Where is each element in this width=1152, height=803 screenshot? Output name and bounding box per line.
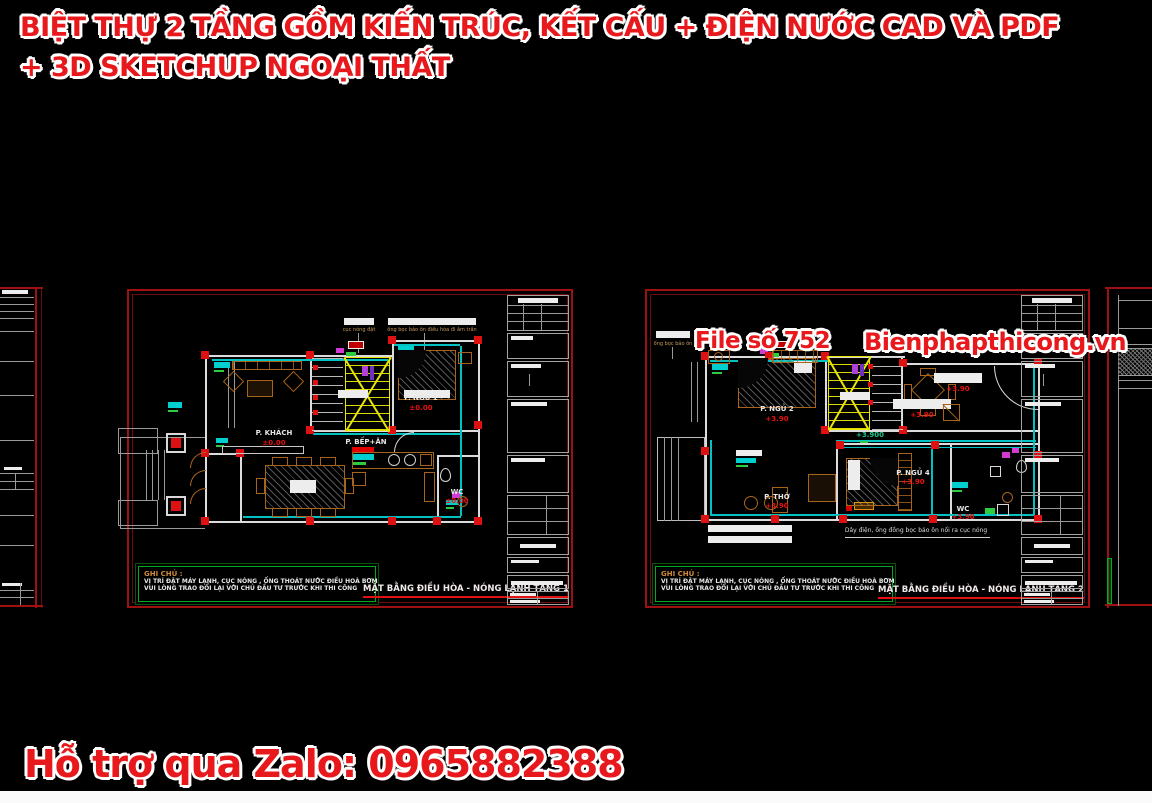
drain-pipe [446,507,454,509]
refrigerant-pipe [1012,448,1019,453]
column-marker [701,515,709,523]
legend-bar [708,536,792,543]
note-heading: GHI CHÚ : [661,570,887,578]
annotation-bar [388,318,476,325]
stairs-flight [872,356,903,430]
watermark-file-number: File số 752 [695,328,830,354]
bed-pillow [848,460,860,490]
titleblock-bar [1025,364,1055,368]
titleblock-bar [2,290,28,294]
legend-bar [708,525,792,532]
room-level: +3.90 [946,385,969,393]
titleblock-bar [511,364,541,368]
riser-pipe [370,366,374,380]
titleblock-bar [1025,560,1053,563]
titleblock-cell [1021,495,1083,535]
washbasin [1002,492,1013,503]
balcony-rail [664,437,665,521]
window-line [228,362,229,428]
sheet-border [0,287,43,289]
titleblock-bar [511,581,563,585]
titleblock-bar [1025,581,1077,585]
titleblock-line [1118,380,1152,381]
titleblock-line [508,305,568,306]
note-heading: GHI CHÚ : [144,570,370,578]
stair-marker [868,364,873,369]
titleblock-bar [1025,458,1059,462]
ac-indoor-unit [952,482,968,488]
room-level: +3.90 [951,513,974,521]
stair-marker [313,380,318,385]
column-marker [929,515,937,523]
titleblock-cell [1021,575,1083,589]
window-line [697,362,698,422]
titleblock-line [0,311,34,312]
wall [240,455,242,523]
note-box: GHI CHÚ : VỊ TRÍ ĐẶT MÁY LẠNH, CỤC NÓNG … [138,566,376,602]
kitchen-sink [404,454,416,466]
titleblock-line [1118,300,1152,301]
porch-step [146,450,147,500]
titleblock-bar [511,402,547,406]
page-title-line2: + 3D SKETCHUP NGOẠI THẤT [20,52,450,83]
footer-support-text: Hỗ trợ qua Zalo: 0965882388 [24,742,623,786]
altar-table [808,474,836,502]
pouf [744,496,758,510]
titleblock-cell [507,591,569,605]
refrigerant-pipe [1002,452,1010,458]
titleblock-cell [507,575,569,589]
cad-screenshot: BIỆT THỰ 2 TẦNG GỒM KIẾN TRÚC, KẾT CẤU +… [0,0,1152,803]
porch-line [120,528,205,529]
titleblock-line [0,590,34,591]
porch-column-core [171,501,181,511]
room-label: P. BẾP+ĂN [345,438,386,446]
wall [478,340,480,523]
note-line: VUI LÒNG TRAO ĐỔI LẠI VỚI CHỦ ĐẦU TƯ TRƯ… [144,585,370,592]
titleblock-cell [507,333,569,359]
coffee-table [247,380,273,397]
stair-marker [313,365,318,370]
annotation-bar [656,331,690,338]
titleblock-line [508,598,568,599]
chair [320,508,336,517]
ac-indoor-unit [214,362,230,368]
water-heater [997,504,1009,516]
titleblock-line [1055,304,1056,330]
chair [256,478,265,494]
wall [825,356,827,432]
column-marker [701,447,709,455]
column-marker [201,517,209,525]
pipe-line [710,440,712,516]
titleblock-line [1060,496,1061,534]
titleblock-bar [511,560,539,563]
toilet [440,468,451,482]
column-marker [306,517,314,525]
legend-tick [168,410,178,412]
drain-pipe [346,352,356,356]
note-line: VUI LÒNG TRAO ĐỔI LẠI VỚI CHỦ ĐẦU TƯ TRƯ… [661,585,887,592]
wall [903,363,1040,365]
fridge [352,472,366,486]
titleblock-bar [510,593,536,596]
riser-pipe [860,364,864,376]
titleblock-bar [1034,544,1070,548]
titleblock-line [0,481,34,482]
kitchen-sink [388,454,400,466]
stair-marker [313,410,318,415]
column-marker [201,351,209,359]
titleblock-line [0,331,34,332]
titleblock-line [1022,508,1082,509]
titleblock-line [1051,592,1052,604]
titleblock-line [1118,388,1152,389]
wall [392,340,394,432]
pipe-line [712,514,1034,516]
titleblock-line [1022,305,1082,306]
cabinet [424,472,435,502]
elevation-label: +3.900 [856,431,884,439]
titleblock-line [546,496,547,534]
chair [904,384,912,400]
riser-pipe [852,364,858,374]
chair [296,457,312,466]
sheet-border [1105,604,1152,606]
room-level: ±0.00 [262,439,285,447]
column-marker [474,421,482,429]
titleblock-line [0,473,34,474]
dining-highlight [290,480,316,493]
room-level: ±0.00 [445,497,468,505]
room-label: WC [451,488,464,496]
titleblock-line [0,515,34,516]
sheet-border [0,605,43,607]
titleblock-line [541,304,542,330]
level-tick [860,441,868,443]
column-marker [836,441,844,449]
chair [272,457,288,466]
chair [296,508,312,517]
porch-step [164,450,165,500]
titleblock-bar [1032,298,1072,303]
note-box: GHI CHÚ : VỊ TRÍ ĐẶT MÁY LẠNH, CỤC NÓNG … [655,566,893,602]
room-label: P. KHÁCH [256,429,293,437]
nightstand [458,352,472,364]
titleblock-line [508,313,568,314]
watermark-site: Bienphapthicong.vn [864,328,1126,356]
titleblock-line [529,374,530,386]
wall [705,356,707,521]
titleblock-line [1022,321,1082,322]
column-marker [474,336,482,344]
porch-step [158,450,159,500]
annotation-bar [344,318,374,325]
titleblock-bar [511,458,545,462]
stove [420,454,432,466]
titleblock-bar [2,583,22,586]
room-level: +3.90 [910,411,933,419]
legend-green-strip [1107,558,1112,604]
wall [437,455,439,523]
chair [272,508,288,517]
titleblock-line [537,592,538,604]
titleblock-line [523,304,524,330]
room-level: +3.90 [901,478,924,486]
room-level: +3.90 [765,415,788,423]
leader-line [424,333,425,351]
titleblock-bar [511,336,533,340]
titleblock-line [1043,374,1044,386]
titleblock-cell [1021,455,1083,493]
refrigerant-pipe [336,348,344,353]
titleblock-line [508,321,568,322]
titleblock-line [1037,304,1038,330]
leader-line [672,347,673,359]
room-label: P. NGỦ 2 [760,405,794,413]
titleblock-bar [1025,402,1061,406]
titleblock-line [0,318,34,319]
room-label: P. NGỦ 4 [896,469,930,477]
legend-tick [712,372,722,374]
titleblock-line [0,489,34,490]
titleblock-bar [520,544,556,548]
window-line [691,362,692,422]
titleblock-line [508,521,568,522]
stair-marker [313,395,318,400]
chair [320,457,336,466]
planter [118,500,158,526]
titleblock-line [20,583,21,605]
ac-indoor-unit [168,402,182,408]
wall [392,340,478,342]
room-label-bar [934,373,982,383]
wall [836,445,838,521]
room-label: P. THỜ [764,493,790,501]
titleblock-cell [1021,295,1083,331]
titleblock-line [1022,521,1082,522]
room-label: P. NGỦ 1 [404,394,438,402]
titleblock-cell [507,399,569,453]
titleblock-cell [1021,591,1083,605]
ac-indoor-unit [736,458,756,463]
column-marker [839,515,847,523]
cable-note-underline [845,537,990,538]
planter [118,428,158,454]
bottom-white-strip [0,791,1152,803]
titleblock-cell [1021,361,1083,397]
legend-tick [952,490,962,492]
wall [705,519,1040,521]
tv-cabinet [222,446,304,454]
legend-tick [736,465,748,467]
titleblock-cell [507,495,569,535]
ac-outdoor-unit [348,341,364,349]
room-level: ±0.00 [409,404,432,412]
stairs-landing-bar [840,392,870,400]
partial-sheet-left [0,287,43,608]
legend-tick [214,370,224,372]
balcony-rail [671,437,672,521]
titleblock-bar [1024,593,1050,596]
room-label: WC [957,505,970,513]
stairs-landing-bar [338,390,368,398]
column-marker [771,515,779,523]
sofa [232,361,302,370]
titleblock-line [0,304,34,305]
titleblock-line [0,395,34,396]
room-level: +3.90 [765,502,788,510]
annotation-label: cục nóng đặt [343,327,376,333]
drain-pipe [985,508,995,514]
note-line: VỊ TRÍ ĐẶT MÁY LẠNH, CỤC NÓNG , ỐNG THOÁ… [661,578,887,585]
column-marker [433,517,441,525]
column-marker [388,336,396,344]
balcony-rail [678,437,679,521]
porch-step [152,450,153,500]
wall [437,455,478,457]
pipe-line [313,433,460,435]
titleblock-bar [4,467,22,470]
titleblock-line [0,597,34,598]
titleblock-line [0,440,34,441]
column-marker [931,441,939,449]
titleblock-cell [507,537,569,555]
annotation-label: ống bọc bảo ôn điều hòa đi âm trần [387,327,476,333]
page-title-line1: BIỆT THỰ 2 TẦNG GỒM KIẾN TRÚC, KẾT CẤU +… [20,12,1059,43]
pipe-line [931,446,933,516]
titleblock-line [0,545,34,546]
titleblock-cell [1021,537,1083,555]
titleblock-line [508,508,568,509]
titleblock-cell [1021,399,1083,453]
column-marker [388,517,396,525]
porch-column-core [171,438,181,448]
legend-bar [736,450,762,456]
washing-machine [990,466,1001,477]
ac-indoor-unit [216,438,228,443]
sheet-border [1105,287,1152,289]
titleblock-line [1022,598,1082,599]
stair-marker [868,400,873,405]
titleblock-bar [518,298,558,303]
titleblock-line [1022,313,1082,314]
note-line: VỊ TRÍ ĐẶT MÁY LẠNH, CỤC NÓNG , ỐNG THOÁ… [144,578,370,585]
stair-marker [868,382,873,387]
titleblock-line [0,297,34,298]
annotation-label: ống bọc bảo ôn [654,341,693,347]
column-marker [474,517,482,525]
titleblock-bar [1024,600,1054,603]
riser-pipe [362,366,368,376]
ac-indoor-unit [712,364,728,370]
titleblock-cell [507,455,569,493]
titleblock-cell [507,361,569,397]
sheet-border [35,287,37,608]
cable-note: Dây điện, ống đồng bọc bảo ôn nối ra cục… [845,527,987,534]
titleblock-cell [1021,557,1083,573]
titleblock-line [15,473,16,489]
sheet-border [41,287,42,608]
titleblock-cell [507,295,569,331]
titleblock-cell [507,557,569,573]
titleblock-bar [510,600,540,603]
titleblock-line [0,361,34,362]
